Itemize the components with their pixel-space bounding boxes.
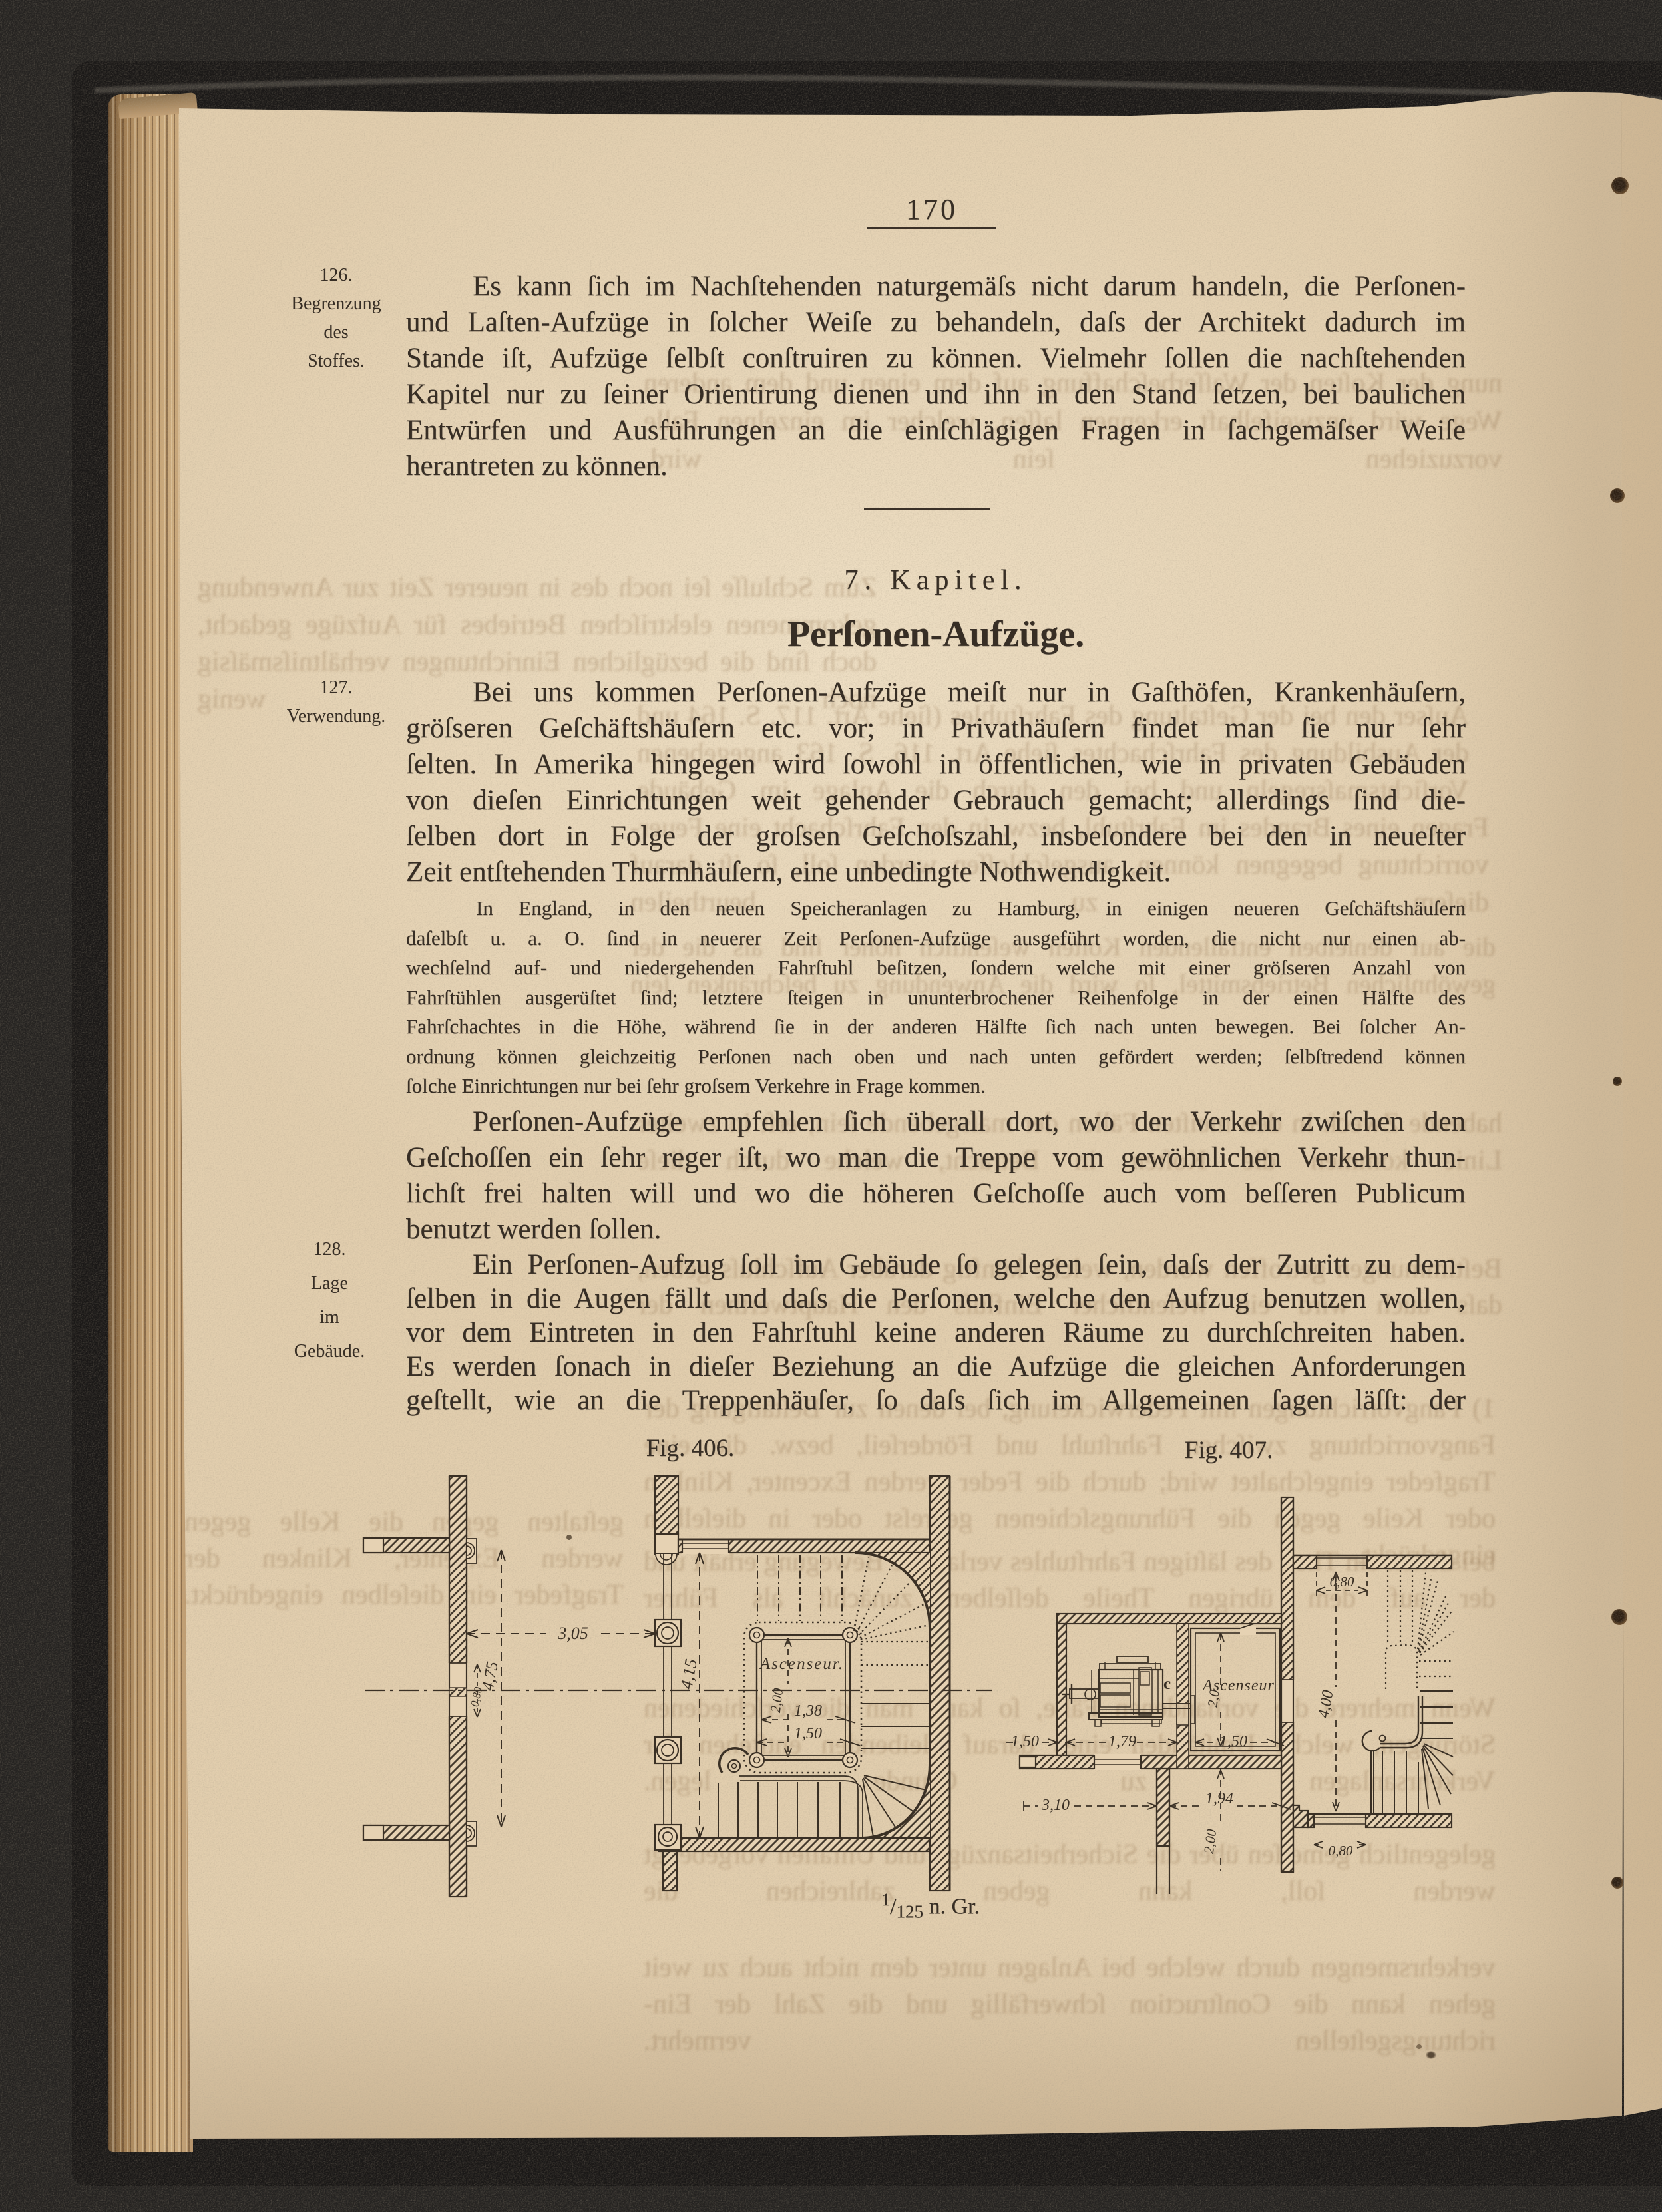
svg-text:0,80: 0,80: [1330, 1574, 1354, 1590]
svg-text:c: c: [1163, 1675, 1171, 1693]
svg-text:1,79: 1,79: [1108, 1733, 1136, 1750]
svg-text:3,05: 3,05: [557, 1624, 588, 1643]
svg-text:4,75: 4,75: [479, 1660, 502, 1692]
svg-text:4,00: 4,00: [1315, 1689, 1337, 1720]
svg-text:1,50: 1,50: [794, 1725, 822, 1742]
svg-text:1,38: 1,38: [794, 1702, 822, 1720]
svg-text:Ascenseur.: Ascenseur.: [759, 1655, 844, 1673]
svg-text:1,50: 1,50: [1219, 1733, 1247, 1750]
svg-text:3,10: 3,10: [1041, 1797, 1070, 1814]
svg-text:0,80: 0,80: [1329, 1843, 1353, 1859]
svg-text:1,94: 1,94: [1205, 1790, 1233, 1807]
svg-text:4,15: 4,15: [676, 1658, 700, 1691]
svg-text:2,00: 2,00: [1201, 1828, 1219, 1855]
svg-text:1,50: 1,50: [1011, 1733, 1039, 1750]
svg-text:0,80: 0,80: [468, 1686, 485, 1708]
svg-text:2,00: 2,00: [767, 1687, 786, 1714]
svg-text:Ascenseur: Ascenseur: [1201, 1677, 1275, 1694]
